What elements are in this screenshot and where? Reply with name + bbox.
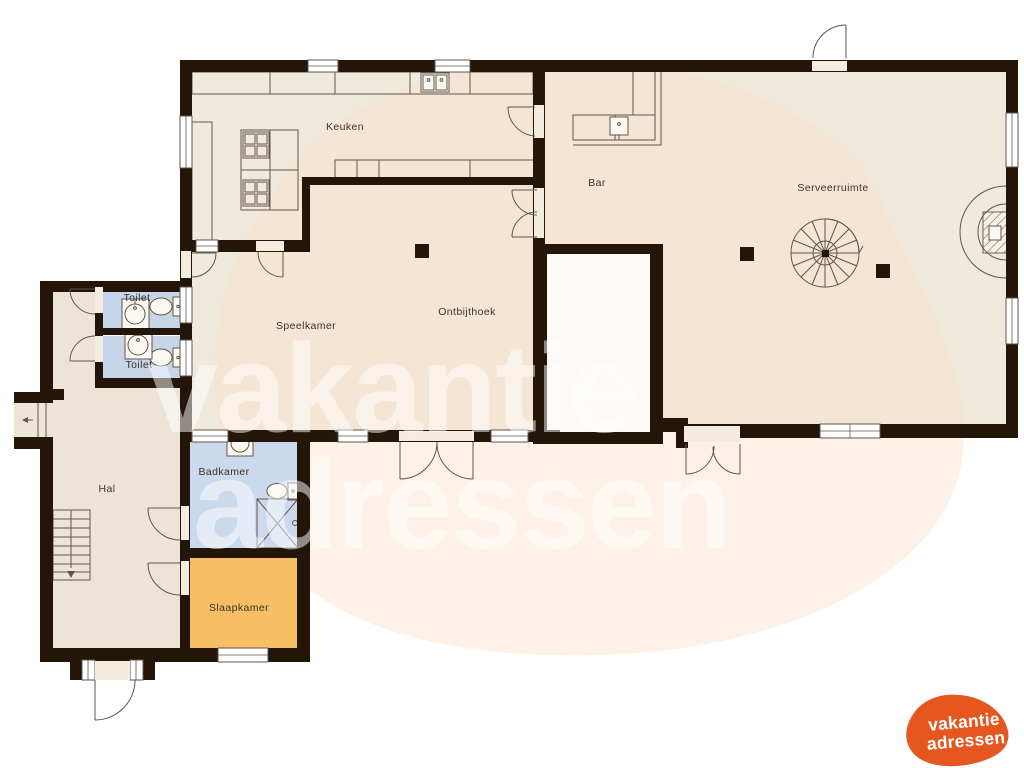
room-label-toilet-1: Toilet: [124, 292, 151, 304]
room-label-serveerruimte: Serveerruimte: [797, 182, 868, 194]
wall-segment: [302, 177, 545, 185]
room-label-bar: Bar: [588, 177, 606, 189]
floorplan-svg: Keuken Bar Serveerruimte Speelkamer Ontb…: [0, 0, 1024, 768]
room-label-ontbijthoek: Ontbijthoek: [438, 306, 496, 318]
watermark-line2: adressen: [193, 434, 730, 575]
wall-segment: [40, 443, 53, 660]
wall-segment: [302, 177, 310, 252]
toilet-fixture: [150, 297, 183, 316]
column: [415, 244, 429, 258]
wall-segment: [70, 660, 82, 680]
wall-segment: [180, 60, 1018, 72]
wall-segment: [40, 648, 310, 662]
room-label-hal: Hal: [99, 483, 116, 495]
wall-segment: [533, 244, 663, 254]
column: [53, 389, 64, 400]
column: [876, 264, 890, 278]
wall-segment: [650, 244, 663, 424]
wall-segment: [180, 430, 190, 660]
wall-segment: [40, 281, 187, 292]
floorplan-page: Keuken Bar Serveerruimte Speelkamer Ontb…: [0, 0, 1024, 768]
column: [740, 247, 754, 261]
brand-logo: vakantie adressen: [906, 695, 1008, 767]
wall-segment: [14, 392, 53, 403]
wall-segment: [40, 281, 53, 398]
room-label-slaapkamer: Slaapkamer: [209, 602, 269, 614]
wall-segment: [143, 660, 155, 680]
niche-floor: [14, 403, 53, 437]
room-label-keuken: Keuken: [326, 121, 364, 133]
